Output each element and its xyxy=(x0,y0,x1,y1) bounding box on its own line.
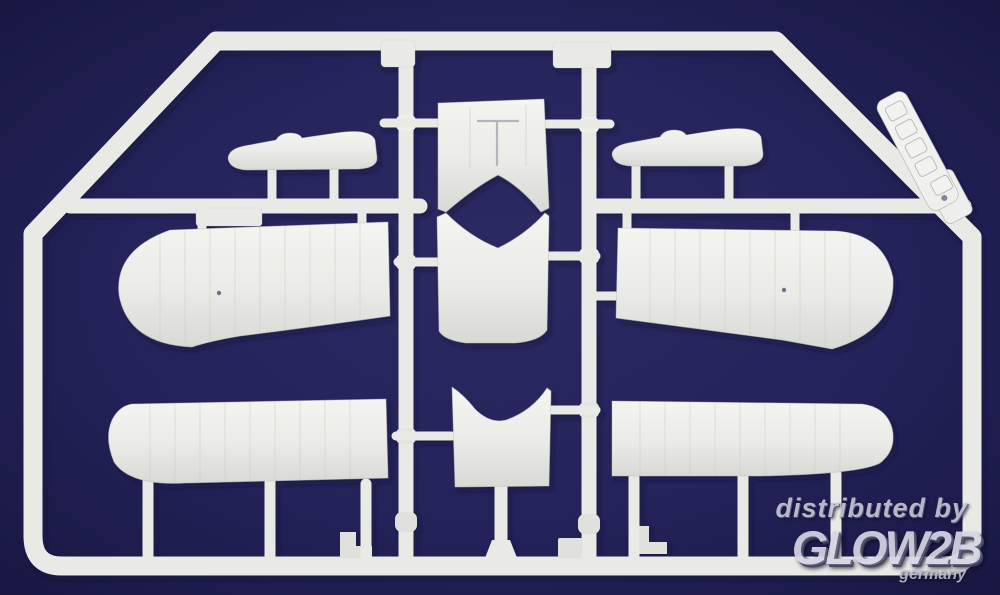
sprue-foot-flare xyxy=(485,540,517,558)
center-section-part-top xyxy=(438,99,549,212)
upper-wing-panel-right xyxy=(616,228,893,349)
lower-wing-panel-right xyxy=(612,401,893,476)
sprue-illustration xyxy=(0,0,1000,595)
tailplane-half-left xyxy=(228,132,377,170)
tailplane-half-right xyxy=(612,129,763,166)
center-section-part-bottom xyxy=(452,387,551,487)
gate-pad xyxy=(381,40,415,67)
gate-pad xyxy=(553,42,611,68)
product-photo-model-sprue: distributed by GLOW2B germany xyxy=(0,0,1000,595)
upper-wing-panel-left xyxy=(119,222,390,347)
center-section-part-middle xyxy=(437,213,549,343)
